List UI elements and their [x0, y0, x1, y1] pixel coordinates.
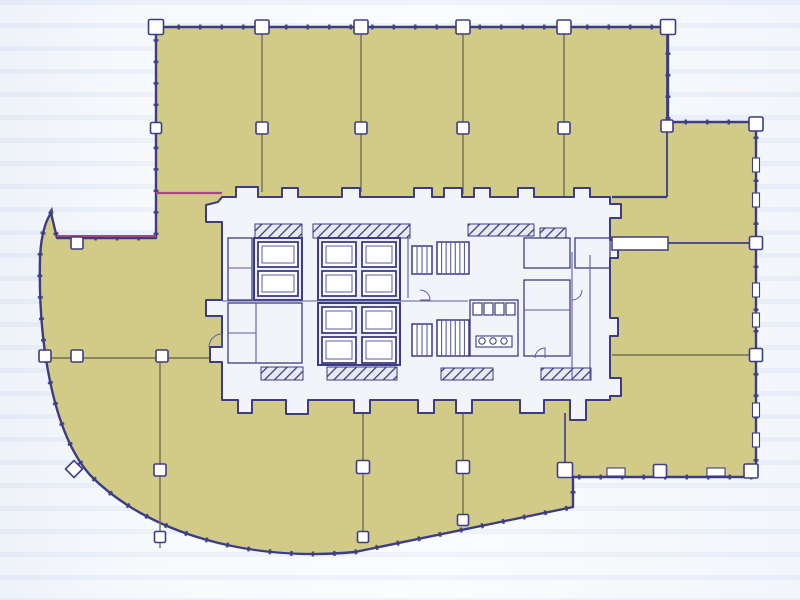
- column-marker: [661, 120, 673, 132]
- column-marker: [355, 122, 367, 134]
- elevator-bank: [254, 238, 302, 300]
- column-marker: [456, 20, 470, 34]
- column-marker: [750, 349, 763, 362]
- column-marker: [255, 20, 269, 34]
- stairwell: [412, 324, 432, 356]
- column-marker: [457, 122, 469, 134]
- wall-opening: [753, 158, 760, 172]
- column-marker: [149, 20, 164, 35]
- wall-opening: [753, 433, 760, 447]
- column-marker: [557, 20, 571, 34]
- column-marker: [558, 463, 573, 478]
- elevator-bank: [318, 238, 400, 300]
- column-marker: [354, 20, 368, 34]
- column-marker: [749, 117, 763, 131]
- stairwell: [437, 242, 469, 274]
- wall-opening: [753, 313, 760, 327]
- column-marker: [156, 350, 168, 362]
- column-marker: [750, 237, 763, 250]
- wall-opening: [753, 193, 760, 207]
- column-marker: [661, 20, 676, 35]
- column-marker: [71, 237, 83, 249]
- elevator-bank: [318, 303, 400, 365]
- column-marker: [458, 515, 469, 526]
- column-marker: [71, 350, 83, 362]
- column-marker: [358, 532, 369, 543]
- column-marker: [151, 123, 162, 134]
- column-marker: [154, 464, 166, 476]
- column-marker: [744, 464, 758, 478]
- column-marker: [457, 461, 470, 474]
- column-marker: [558, 122, 570, 134]
- column-marker: [654, 465, 667, 478]
- column-marker: [39, 350, 51, 362]
- floor-plan-page: [0, 0, 800, 600]
- column-marker: [256, 122, 268, 134]
- wall-opening: [753, 283, 760, 297]
- column-marker: [357, 461, 370, 474]
- wall-opening: [753, 403, 760, 417]
- stairwell: [412, 246, 432, 274]
- wall-opening: [707, 468, 725, 476]
- wall-opening: [607, 468, 625, 476]
- floor-plan-drawing: [0, 0, 800, 600]
- stairwell: [437, 320, 469, 356]
- column-marker: [155, 532, 166, 543]
